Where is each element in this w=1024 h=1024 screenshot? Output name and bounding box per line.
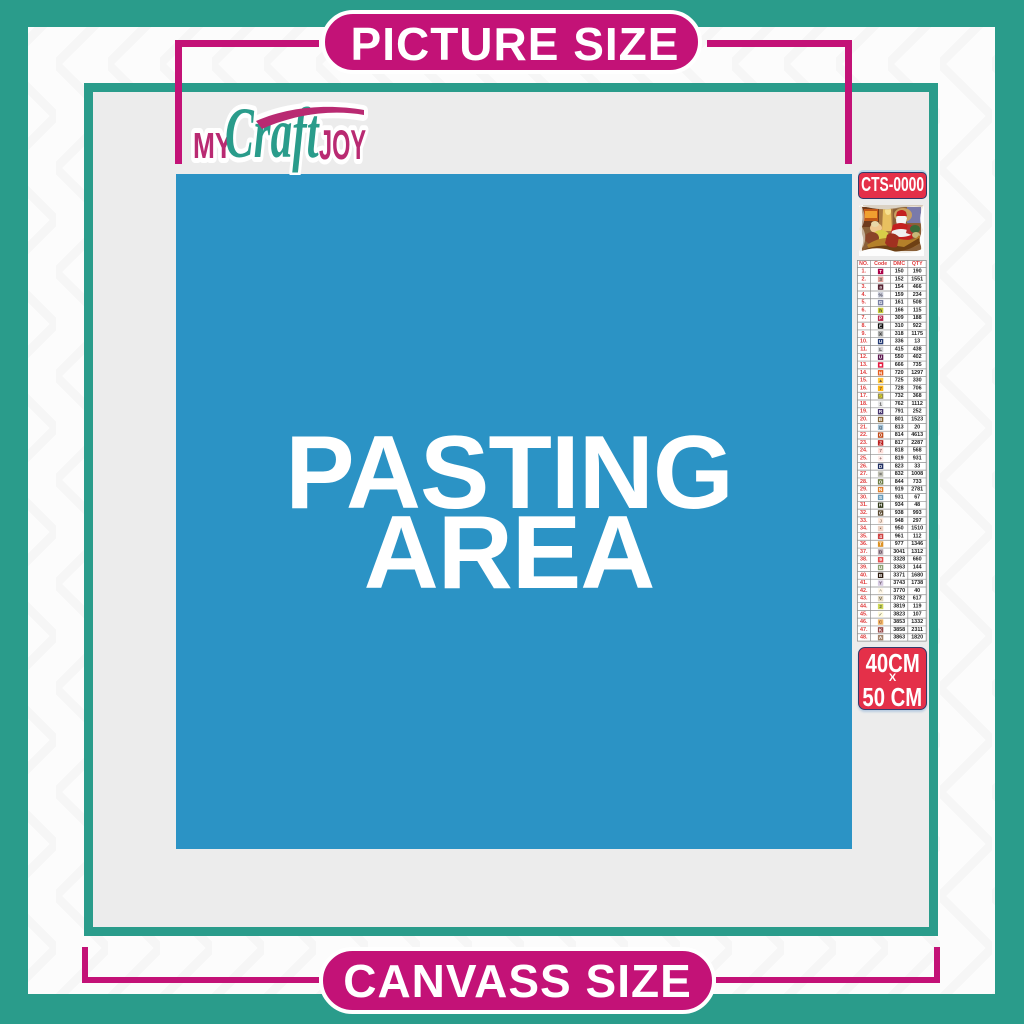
svg-text:948: 948 [895,518,904,524]
svg-text:2: 2 [879,604,882,609]
svg-text:7.: 7. [862,315,867,321]
svg-text:309: 309 [895,315,904,321]
svg-text:T: T [879,269,882,274]
svg-text:2287: 2287 [911,440,923,446]
svg-text:818: 818 [895,448,904,454]
svg-text:252: 252 [913,409,922,415]
svg-text:1738: 1738 [911,580,923,586]
svg-text:931: 931 [913,455,922,461]
svg-text:402: 402 [913,354,922,360]
svg-text:20: 20 [914,424,920,430]
svg-text:15.: 15. [860,378,868,384]
svg-text:330: 330 [913,378,922,384]
svg-text:27.: 27. [860,471,868,477]
svg-text:706: 706 [913,385,922,391]
svg-text:3823: 3823 [893,611,905,617]
svg-text:1680: 1680 [911,572,923,578]
svg-text:S: S [879,394,882,399]
svg-text:25.: 25. [860,455,868,461]
svg-text:813: 813 [895,424,904,430]
svg-text:Craft: Craft [225,93,320,173]
svg-text:36.: 36. [860,541,868,547]
svg-text:^: ^ [879,588,882,593]
svg-text:1346: 1346 [911,541,923,547]
svg-text:1312: 1312 [911,549,923,555]
svg-text:16.: 16. [860,385,868,391]
svg-text:166: 166 [895,307,904,313]
svg-text:1.: 1. [862,268,867,274]
svg-text:3: 3 [879,277,882,282]
svg-text:13: 13 [914,339,920,345]
svg-text:934: 934 [895,502,904,508]
svg-text:1008: 1008 [911,471,923,477]
svg-text:2311: 2311 [911,627,923,633]
svg-text:977: 977 [895,541,904,547]
svg-text:919: 919 [895,487,904,493]
svg-text:3363: 3363 [893,565,905,571]
svg-text:938: 938 [895,510,904,516]
svg-text:993: 993 [913,510,922,516]
svg-text:1820: 1820 [911,635,923,641]
svg-text:438: 438 [913,346,922,352]
svg-text:19.: 19. [860,409,868,415]
svg-text:3858: 3858 [893,627,905,633]
svg-text:3041: 3041 [893,549,905,555]
svg-text:9: 9 [879,557,882,562]
svg-text:26.: 26. [860,463,868,469]
svg-text:159: 159 [895,292,904,298]
svg-text:Code: Code [874,261,887,267]
svg-text:42.: 42. [860,588,868,594]
svg-text:823: 823 [895,463,904,469]
svg-text:G: G [879,300,883,305]
svg-text:762: 762 [895,401,904,407]
svg-text:O: O [879,479,883,484]
svg-text:112: 112 [913,533,922,539]
svg-text:3371: 3371 [893,572,905,578]
svg-text:508: 508 [913,300,922,306]
svg-text:22.: 22. [860,432,868,438]
svg-text:41.: 41. [860,580,868,586]
svg-text:115: 115 [913,307,922,313]
svg-text:4: 4 [879,534,882,539]
svg-text:JOY: JOY [319,122,366,169]
svg-text:2.: 2. [862,276,867,282]
svg-text:20.: 20. [860,417,868,423]
svg-text:DMC: DMC [893,261,905,267]
svg-text:318: 318 [895,331,904,337]
svg-text:O: O [879,433,883,438]
svg-text:18.: 18. [860,401,868,407]
svg-text:3819: 3819 [893,603,905,609]
svg-text:188: 188 [913,315,922,321]
svg-text:3863: 3863 [893,635,905,641]
svg-text:67: 67 [914,494,920,500]
svg-text:h: h [879,308,882,313]
svg-text:Y: Y [879,581,882,586]
svg-text:119: 119 [913,603,922,609]
svg-text:14.: 14. [860,370,868,376]
svg-text:P: P [879,316,882,321]
svg-text:30.: 30. [860,494,868,500]
svg-text:34.: 34. [860,526,868,532]
svg-text:3853: 3853 [893,619,905,625]
svg-text:QTY: QTY [912,261,923,267]
svg-text:791: 791 [895,409,904,415]
svg-text:8.: 8. [862,323,867,329]
svg-text:728: 728 [895,385,904,391]
svg-text:3770: 3770 [893,588,905,594]
svg-text:735: 735 [913,362,922,368]
svg-text:466: 466 [913,284,922,290]
svg-text:154: 154 [895,284,904,290]
svg-text:7: 7 [879,386,882,391]
svg-text:9.: 9. [862,331,867,337]
svg-text:3328: 3328 [893,557,905,563]
svg-text:3743: 3743 [893,580,905,586]
svg-text:961: 961 [895,533,904,539]
svg-text:5.: 5. [862,300,867,306]
svg-text:819: 819 [895,455,904,461]
svg-text:3782: 3782 [893,596,905,602]
svg-text:38.: 38. [860,557,868,563]
svg-text:732: 732 [895,393,904,399]
svg-text:E: E [879,324,882,329]
svg-text:152: 152 [895,276,904,282]
svg-text:13.: 13. [860,362,868,368]
svg-text:40.: 40. [860,572,868,578]
svg-text:1: 1 [879,401,882,406]
svg-text:234: 234 [913,292,922,298]
svg-text:1112: 1112 [911,401,922,407]
svg-text:21.: 21. [860,424,868,430]
svg-text:144: 144 [913,565,922,571]
svg-text:336: 336 [895,339,904,345]
svg-text:43.: 43. [860,596,868,602]
svg-text:+: + [879,456,882,461]
svg-text:7: 7 [879,448,882,453]
svg-text:1332: 1332 [911,619,923,625]
svg-text:45.: 45. [860,611,868,617]
svg-text:Z: Z [879,440,882,445]
svg-text:725: 725 [895,378,904,384]
svg-text:150: 150 [895,268,904,274]
svg-text:3.: 3. [862,284,867,290]
svg-text:28.: 28. [860,479,868,485]
svg-text:922: 922 [913,323,922,329]
svg-text:47.: 47. [860,627,868,633]
svg-text:660: 660 [913,557,922,563]
svg-text:720: 720 [895,370,904,376]
svg-text:29.: 29. [860,487,868,493]
svg-text:297: 297 [913,518,922,524]
svg-text:6.: 6. [862,307,867,313]
svg-text:666: 666 [895,362,904,368]
svg-text:817: 817 [895,440,904,446]
svg-text:23.: 23. [860,440,868,446]
svg-text:T: T [879,542,882,547]
svg-text:161: 161 [895,300,904,306]
svg-text:814: 814 [895,432,904,438]
svg-text:733: 733 [913,479,922,485]
svg-text:Q: Q [879,425,883,430]
svg-text:617: 617 [913,596,922,602]
svg-text:1510: 1510 [911,526,923,532]
svg-text:S: S [879,495,882,500]
svg-text:33.: 33. [860,518,868,524]
svg-text:%: % [879,292,883,297]
svg-text:931: 931 [895,494,904,500]
svg-text:4.: 4. [862,292,867,298]
svg-text:190: 190 [913,268,922,274]
svg-text:▲: ▲ [878,378,883,383]
svg-text:■: ■ [879,362,882,367]
svg-text:832: 832 [895,471,904,477]
svg-text:368: 368 [913,393,922,399]
svg-text:31.: 31. [860,502,868,508]
svg-text:33: 33 [914,463,920,469]
svg-text:550: 550 [895,354,904,360]
svg-text:17.: 17. [860,393,868,399]
svg-text:1523: 1523 [911,417,923,423]
svg-text:≡: ≡ [879,472,882,477]
svg-text:35.: 35. [860,533,868,539]
svg-text:1551: 1551 [911,276,923,282]
svg-text:39.: 39. [860,565,868,571]
svg-text:24.: 24. [860,448,868,454]
svg-text:40: 40 [914,588,920,594]
svg-text:✓: ✓ [879,612,883,617]
svg-text:107: 107 [913,611,922,617]
svg-text:310: 310 [895,323,904,329]
svg-text:G: G [879,510,883,515]
svg-text:950: 950 [895,526,904,532]
svg-text:844: 844 [895,479,904,485]
svg-text:a: a [879,285,882,290]
svg-text:2781: 2781 [911,487,923,493]
svg-text:12.: 12. [860,354,868,360]
svg-text:801: 801 [895,417,904,423]
svg-text:44.: 44. [860,603,868,609]
svg-text:L: L [879,347,882,352]
svg-text:1297: 1297 [911,370,923,376]
svg-text:48.: 48. [860,635,868,641]
svg-text:37.: 37. [860,549,868,555]
svg-text:415: 415 [895,346,904,352]
svg-text:1175: 1175 [911,331,923,337]
svg-text:J: J [879,518,882,523]
svg-text:10.: 10. [860,339,868,345]
svg-text:48: 48 [914,502,920,508]
svg-text:32.: 32. [860,510,868,516]
svg-text:4613: 4613 [911,432,923,438]
svg-text:11.: 11. [860,346,868,352]
svg-text:NO.: NO. [859,261,869,267]
svg-text:46.: 46. [860,619,868,625]
svg-text:568: 568 [913,448,922,454]
